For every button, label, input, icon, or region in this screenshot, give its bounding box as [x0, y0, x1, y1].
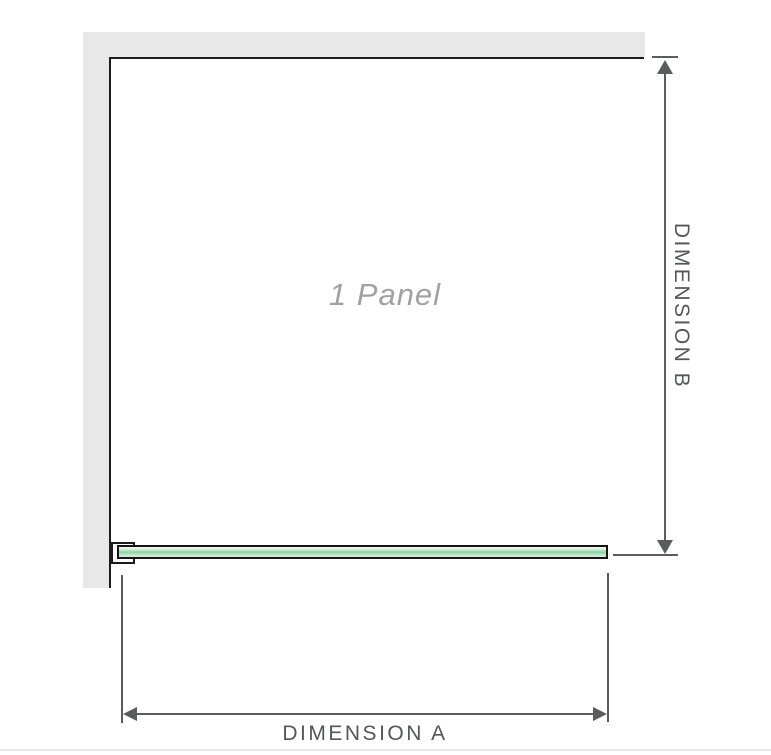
wall-segment-left	[83, 32, 109, 588]
glass-panel-plan	[117, 545, 608, 559]
dimension-a-extension-left	[121, 575, 123, 723]
dimension-a-line	[135, 713, 595, 715]
wall-segment-top	[83, 32, 645, 57]
panel-dimension-diagram: 1 Panel DIMENSION B DIMENSION A	[0, 0, 771, 755]
panel-top-edge	[109, 57, 644, 59]
arrow-right-icon	[593, 707, 607, 721]
dimension-b-label: DIMENSION B	[669, 196, 693, 416]
dimension-b-tick-bottom	[613, 554, 678, 556]
arrow-left-icon	[123, 707, 137, 721]
dimension-a-extension-right	[607, 573, 609, 722]
panel-label: 1 Panel	[265, 278, 505, 312]
dimension-b-tick-top	[652, 56, 678, 58]
arrow-down-icon	[657, 540, 673, 554]
dimension-a-label: DIMENSION A	[245, 722, 485, 746]
panel-left-edge	[109, 57, 111, 588]
dimension-b-line	[664, 62, 666, 544]
page-divider-line	[0, 749, 771, 751]
arrow-up-icon	[657, 60, 673, 74]
